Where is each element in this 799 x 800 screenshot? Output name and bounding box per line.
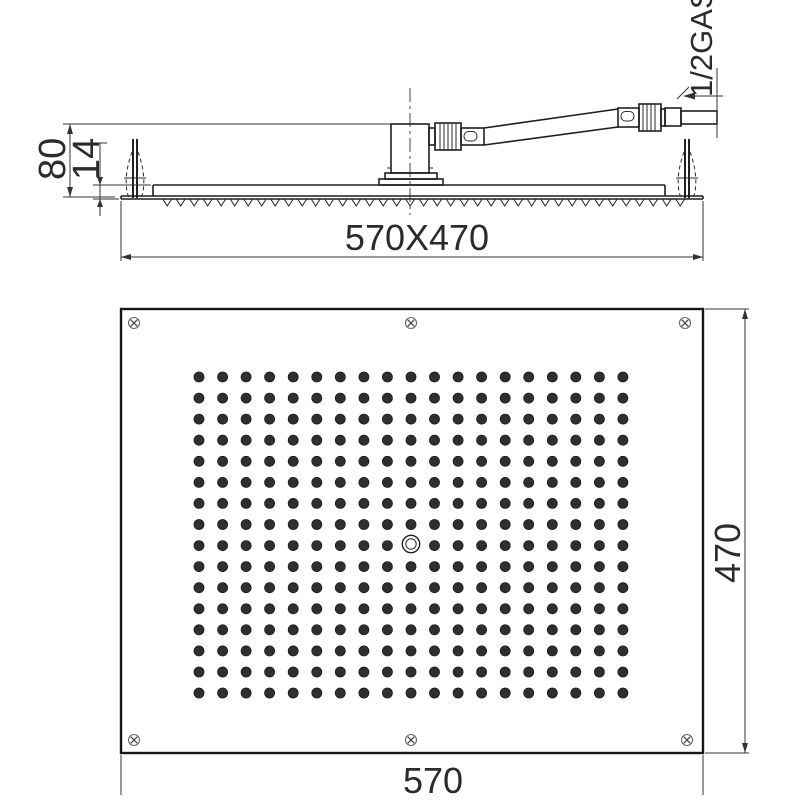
nozzle [594,519,604,529]
nozzle [571,372,581,382]
nozzle [500,625,510,635]
nozzle [618,625,628,635]
nozzle [524,519,534,529]
nozzle [547,646,557,656]
nozzle [594,583,604,593]
nozzle [477,498,487,508]
nozzle [594,646,604,656]
nozzle [524,498,534,508]
nozzle [618,498,628,508]
nozzle [265,583,275,593]
nozzle [453,498,463,508]
nozzle [382,583,392,593]
nozzle [453,583,463,593]
nozzle [429,541,439,551]
nozzle [288,646,298,656]
nozzle [265,393,275,403]
nozzle [547,625,557,635]
nozzle [335,688,345,698]
nozzle [241,604,251,614]
plate-size-label: 570X470 [345,217,489,258]
nozzle [288,562,298,572]
nozzle [335,414,345,424]
nozzle [288,435,298,445]
nozzle [477,477,487,487]
nozzle [406,414,416,424]
nozzle [335,667,345,677]
nozzle [594,414,604,424]
nozzle [594,477,604,487]
nozzle [571,498,581,508]
nozzle [429,414,439,424]
nozzle [618,604,628,614]
nozzle [594,604,604,614]
nozzle [359,625,369,635]
nozzle [571,667,581,677]
nozzle [571,688,581,698]
nozzle [477,435,487,445]
nozzle [335,456,345,466]
nozzle [335,477,345,487]
nozzle [218,477,228,487]
nozzle [406,435,416,445]
nozzle [547,498,557,508]
nozzle [288,372,298,382]
nozzle [382,456,392,466]
nozzle [618,667,628,677]
nozzle [500,498,510,508]
nozzle [429,667,439,677]
nozzle [594,667,604,677]
nozzle [406,562,416,572]
nozzle [194,372,204,382]
nozzle [453,414,463,424]
nozzle [265,435,275,445]
nozzle [265,456,275,466]
nozzle [500,456,510,466]
mounting-clip-right [676,139,698,198]
nozzle [218,562,228,572]
nozzle [335,562,345,572]
nozzle [218,456,228,466]
nozzle [547,414,557,424]
nozzle [382,646,392,656]
nozzle [524,435,534,445]
nozzle [241,414,251,424]
nozzle [265,414,275,424]
nozzle [453,541,463,551]
nozzle [265,498,275,508]
nozzle [382,435,392,445]
nozzle [594,541,604,551]
nozzle [453,519,463,529]
nozzle [218,604,228,614]
nozzle [382,604,392,614]
nozzle [382,498,392,508]
nozzle [477,562,487,572]
nozzle [312,604,322,614]
nozzle [500,541,510,551]
gas-connection-annotation: 1/2GAS [677,0,723,138]
nozzle [359,646,369,656]
nozzle [571,435,581,445]
nozzle [453,456,463,466]
nozzle [618,583,628,593]
dimension-depth-470: 470 [705,309,749,753]
dimension-plate-size: 570X470 [121,201,703,261]
nozzle [194,435,204,445]
nozzle [288,688,298,698]
nozzle [500,646,510,656]
nozzle [429,498,439,508]
nozzle [359,688,369,698]
nozzle [594,562,604,572]
nozzle [218,667,228,677]
nozzle [524,583,534,593]
plan-view: 470 570 [121,309,749,800]
nozzle [618,393,628,403]
nozzle [288,667,298,677]
nozzle [335,541,345,551]
nozzle [429,688,439,698]
nozzle [453,477,463,487]
nozzle [359,477,369,487]
nozzle [288,456,298,466]
nozzle [265,625,275,635]
nozzle [500,393,510,403]
nozzle [429,604,439,614]
nozzle [547,393,557,403]
nozzle [406,583,416,593]
width-label: 570 [403,760,463,800]
nozzle [453,646,463,656]
nozzle [194,477,204,487]
nozzle [382,688,392,698]
nozzle [218,625,228,635]
nozzle [288,583,298,593]
dimension-thickness-14: 14 [66,138,151,216]
nozzle [524,393,534,403]
nozzle [359,667,369,677]
nozzle [477,519,487,529]
nozzle [359,583,369,593]
nozzle [359,393,369,403]
nozzle [547,372,557,382]
nozzle [453,435,463,445]
nozzle [571,414,581,424]
nozzle [312,688,322,698]
nozzle [406,477,416,487]
mounting-clip-left [124,139,146,198]
nozzle [618,372,628,382]
nozzle [406,625,416,635]
nozzle [547,562,557,572]
nozzle [477,688,487,698]
nozzle [359,435,369,445]
nozzle [218,372,228,382]
nozzle [382,477,392,487]
nozzle [218,583,228,593]
nozzle [547,583,557,593]
nozzle [500,477,510,487]
nozzle [218,414,228,424]
water-connector [379,124,443,185]
dimension-width-570: 570 [121,755,703,800]
nozzle [524,646,534,656]
nozzle [382,393,392,403]
nozzle [524,541,534,551]
nozzle [477,667,487,677]
nozzle [571,477,581,487]
nozzle [265,646,275,656]
nozzle [571,456,581,466]
nozzle [194,646,204,656]
nozzle [241,688,251,698]
nozzle [453,604,463,614]
nozzle-teeth-row [163,200,684,207]
nozzle [241,393,251,403]
nozzle [524,688,534,698]
gas-connection-label: 1/2GAS [684,0,719,97]
nozzle [594,435,604,445]
nozzle [406,646,416,656]
nozzle [359,562,369,572]
nozzle [382,562,392,572]
nozzle [335,646,345,656]
nozzle [453,667,463,677]
nozzle [429,583,439,593]
nozzle [312,456,322,466]
nozzle [618,414,628,424]
nozzle [359,456,369,466]
nozzle [335,625,345,635]
nozzle [406,667,416,677]
nozzle [312,667,322,677]
depth-label: 470 [707,523,748,583]
nozzle [312,646,322,656]
nozzle [406,604,416,614]
nozzle [241,456,251,466]
nozzle [288,498,298,508]
nozzle [594,498,604,508]
nozzle [500,688,510,698]
nozzle [288,604,298,614]
nozzle [241,372,251,382]
nozzle [382,519,392,529]
nozzle [453,393,463,403]
nozzle [406,456,416,466]
thickness-label: 14 [66,138,108,180]
nozzle [265,688,275,698]
nozzle [335,604,345,614]
nozzle [547,541,557,551]
nozzle [312,625,322,635]
plate-side-profile [121,185,703,199]
nozzle [218,519,228,529]
nozzle [500,604,510,614]
nozzle [547,667,557,677]
nozzle [500,435,510,445]
nozzle [335,519,345,529]
nozzle [477,646,487,656]
nozzle [571,625,581,635]
nozzle [218,688,228,698]
nozzle [571,519,581,529]
nozzle [618,456,628,466]
nozzle [194,541,204,551]
technical-drawing-page: 1/2GAS 80 [0,0,799,800]
nozzle [382,414,392,424]
nozzle [241,562,251,572]
nozzle [241,435,251,445]
nozzle [359,604,369,614]
nozzle [406,393,416,403]
nozzle [547,688,557,698]
nozzle [312,414,322,424]
shower-head-technical-drawing: 1/2GAS 80 [0,0,799,800]
nozzle [547,604,557,614]
nozzle [429,435,439,445]
nozzle [571,604,581,614]
nozzle [618,477,628,487]
nozzle [194,625,204,635]
nozzle [359,541,369,551]
nozzle [500,667,510,677]
nozzle [524,625,534,635]
nozzle [288,393,298,403]
nozzle [241,625,251,635]
nozzle [241,646,251,656]
nozzle [453,372,463,382]
nozzle [241,667,251,677]
nozzle [265,562,275,572]
nozzle [477,393,487,403]
nozzle [406,498,416,508]
nozzle [241,498,251,508]
nozzle [335,393,345,403]
nozzle [500,562,510,572]
nozzle [500,519,510,529]
nozzle [218,646,228,656]
nozzle [359,414,369,424]
nozzle [218,393,228,403]
nozzle [429,646,439,656]
nozzle [524,477,534,487]
nozzle [194,604,204,614]
nozzle [453,562,463,572]
nozzle [429,372,439,382]
nozzle [429,393,439,403]
nozzle [618,688,628,698]
nozzle [477,604,487,614]
nozzle [265,541,275,551]
nozzle [241,477,251,487]
nozzle [453,688,463,698]
nozzle [406,688,416,698]
nozzle [335,583,345,593]
nozzle [547,519,557,529]
nozzle [194,688,204,698]
nozzle [547,477,557,487]
nozzle [618,646,628,656]
nozzle [218,435,228,445]
nozzle [241,519,251,529]
nozzle [500,583,510,593]
nozzle [429,519,439,529]
flexible-hose [484,109,618,145]
nozzle [194,456,204,466]
nozzle [477,541,487,551]
nozzle [194,583,204,593]
nozzle [335,498,345,508]
nozzle [429,562,439,572]
nozzle [547,435,557,445]
nozzle [594,688,604,698]
nozzle [312,519,322,529]
nozzle [194,393,204,403]
nozzle [288,477,298,487]
nozzle [359,498,369,508]
nozzle [288,541,298,551]
hose-nut-left [429,123,484,150]
nozzle [382,541,392,551]
nozzle [382,667,392,677]
nozzle [241,541,251,551]
nozzle [406,372,416,382]
nozzle [265,604,275,614]
nozzle [594,393,604,403]
nozzle [335,435,345,445]
nozzle [312,372,322,382]
nozzle [524,604,534,614]
nozzle [194,519,204,529]
nozzle [194,562,204,572]
nozzle [571,646,581,656]
nozzle [382,625,392,635]
nozzle [359,372,369,382]
nozzle [594,625,604,635]
nozzle [429,625,439,635]
nozzle [618,562,628,572]
nozzle [194,414,204,424]
side-view: 1/2GAS 80 [32,0,723,261]
nozzle [477,372,487,382]
nozzle [477,625,487,635]
nozzle [453,625,463,635]
nozzle [312,541,322,551]
center-hole [402,535,419,552]
nozzle [265,372,275,382]
nozzle [618,541,628,551]
nozzle [524,372,534,382]
nozzle [524,414,534,424]
nozzle [288,414,298,424]
nozzle [312,498,322,508]
nozzle [194,667,204,677]
nozzle [524,456,534,466]
nozzle [594,456,604,466]
nozzle [500,414,510,424]
nozzle [265,667,275,677]
nozzle [618,519,628,529]
nozzle [547,456,557,466]
nozzle [571,562,581,572]
nozzle [335,372,345,382]
nozzle [524,562,534,572]
nozzle [288,519,298,529]
nozzle [265,519,275,529]
nozzle [218,541,228,551]
